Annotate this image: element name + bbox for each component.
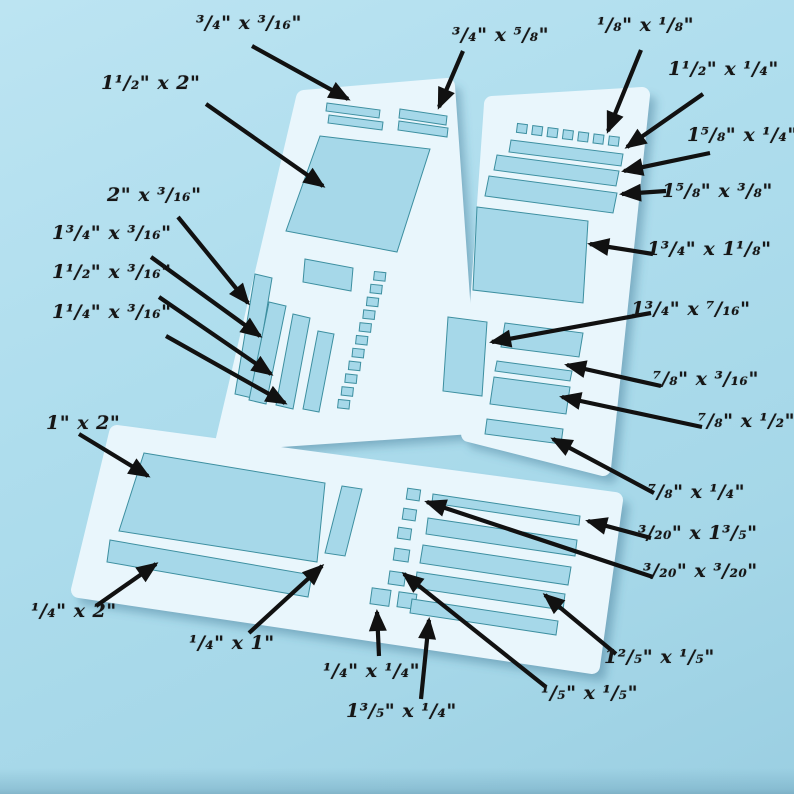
size-label-3-4x5-8: ³/₄" x ⁵/₈" <box>452 24 549 46</box>
size-label-2x3-16: 2" x ³/₁₆" <box>107 184 201 206</box>
size-label-1-1-2x2: 1¹/₂" x 2" <box>101 72 200 94</box>
size-label-3-20x1-3-5: ³/₂₀" x 1³/₅" <box>638 522 758 544</box>
size-label-7-8x3-16: ⁷/₈" x ³/₁₆" <box>653 368 759 390</box>
size-label-1-2-5x1-5: 1²/₅" x ¹/₅" <box>604 646 715 668</box>
size-label-1-3-4x3-16: 1³/₄" x ³/₁₆" <box>52 222 172 244</box>
stencil-panel-bottom <box>79 433 615 666</box>
size-label-1-3-5x1-4: 1³/₅" x ¹/₄" <box>346 700 457 722</box>
size-label-1-4x2: ¹/₄" x 2" <box>31 600 117 622</box>
table-edge-shadow <box>0 768 794 794</box>
size-label-1-5-8x3-8: 1⁵/₈" x ³/₈" <box>662 180 773 202</box>
size-label-1-4x1-4: ¹/₄" x ¹/₄" <box>323 660 420 682</box>
size-label-7-8x1-4: ⁷/₈" x ¹/₄" <box>648 481 745 503</box>
size-label-1-1-2x3-16: 1¹/₂" x ³/₁₆" <box>52 261 172 283</box>
size-label-1-8x1-8: ¹/₈" x ¹/₈" <box>597 14 694 36</box>
arrow-icon <box>377 612 379 656</box>
size-label-1-1-4x3-16: 1¹/₄" x ³/₁₆" <box>52 301 172 323</box>
size-label-1-4x1: ¹/₄" x 1" <box>189 632 275 654</box>
size-label-1-1-2x1-4: 1¹/₂" x ¹/₄" <box>668 58 779 80</box>
arrow-icon <box>252 46 348 99</box>
size-label-1-5x1-5: ¹/₅" x ¹/₅" <box>541 682 638 704</box>
size-label-1x2: 1" x 2" <box>46 412 120 434</box>
size-label-3-4x3-16: ³/₄" x ³/₁₆" <box>196 12 302 34</box>
cutout-rect-small <box>443 317 487 396</box>
stencil-panel-top-right <box>443 95 642 468</box>
size-label-1-5-8x1-4: 1⁵/₈" x ¹/₄" <box>687 124 794 146</box>
size-label-3-20x3-20: ³/₂₀" x ³/₂₀" <box>643 560 758 582</box>
size-label-7-8x1-2: ⁷/₈" x ¹/₂" <box>698 410 794 432</box>
arrow-icon <box>622 191 666 194</box>
size-label-1-3-4x1-1-8: 1³/₄" x 1¹/₈" <box>647 238 771 260</box>
size-label-1-3-4x7-16: 1³/₄" x ⁷/₁₆" <box>631 298 751 320</box>
arrow-icon <box>178 217 248 303</box>
cutout-rect-large <box>473 207 588 303</box>
stencil-product-photo: ³/₄" x ³/₁₆" 1¹/₂" x 2" ³/₄" x ⁵/₈" ¹/₈"… <box>0 0 794 794</box>
